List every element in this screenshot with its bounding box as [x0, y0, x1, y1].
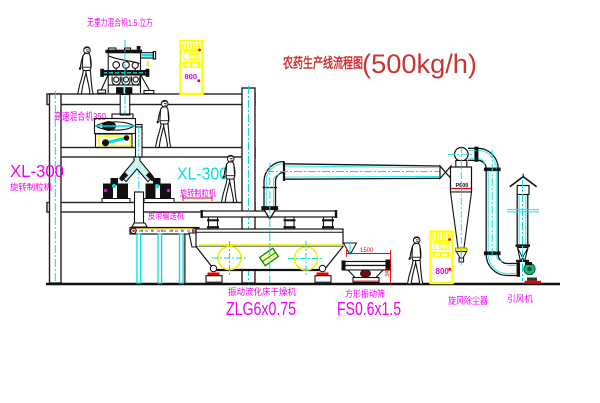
svg-text:方形振动筛: 方形振动筛: [345, 288, 385, 299]
svg-text:皮带输送机: 皮带输送机: [148, 211, 184, 221]
svg-text:引风机: 引风机: [507, 293, 533, 304]
svg-text:旋转制粒机: 旋转制粒机: [180, 188, 216, 198]
svg-text:(500kg/h): (500kg/h): [362, 49, 477, 79]
svg-text:XL-300: XL-300: [10, 161, 64, 181]
svg-text:800: 800: [185, 72, 198, 81]
svg-text:旋转制粒机: 旋转制粒机: [10, 182, 52, 192]
svg-text:FS0.6x1.5: FS0.6x1.5: [337, 299, 401, 319]
svg-text:340: 340: [385, 268, 391, 277]
svg-text:1500: 1500: [360, 248, 374, 254]
svg-text:P600: P600: [456, 183, 469, 189]
svg-text:农药生产线流程图: 农药生产线流程图: [282, 55, 363, 71]
svg-text:无重力混合机1.5 立方: 无重力混合机1.5 立方: [87, 17, 153, 29]
svg-text:ZLG6x0.75: ZLG6x0.75: [226, 299, 296, 319]
svg-text:800: 800: [436, 267, 450, 276]
svg-text:XL-300: XL-300: [177, 164, 228, 184]
svg-text:高速混合机350: 高速混合机350: [54, 110, 106, 123]
svg-text:旋风除尘器: 旋风除尘器: [448, 295, 488, 307]
svg-text:振动流化床干燥机: 振动流化床干燥机: [228, 286, 296, 297]
